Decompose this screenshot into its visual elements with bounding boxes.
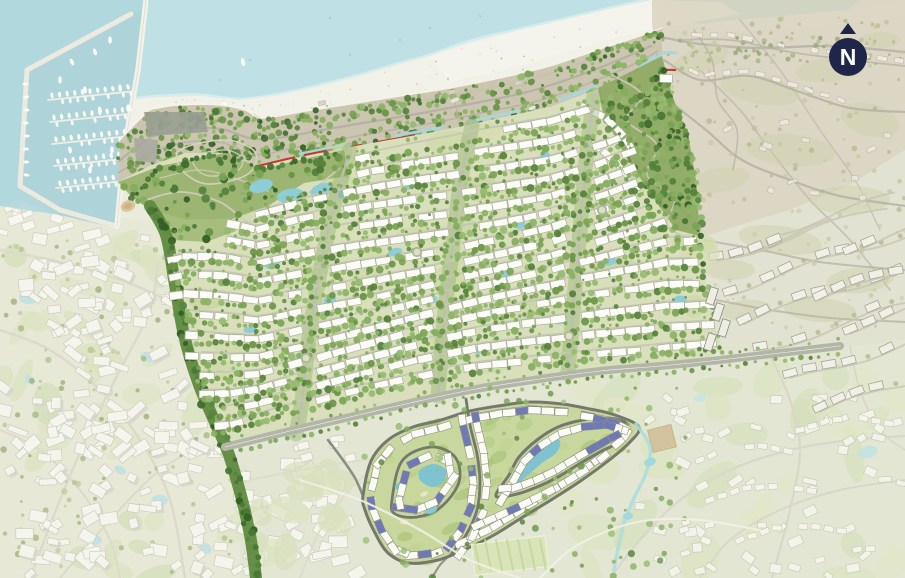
svg-text:N: N [840,44,857,70]
